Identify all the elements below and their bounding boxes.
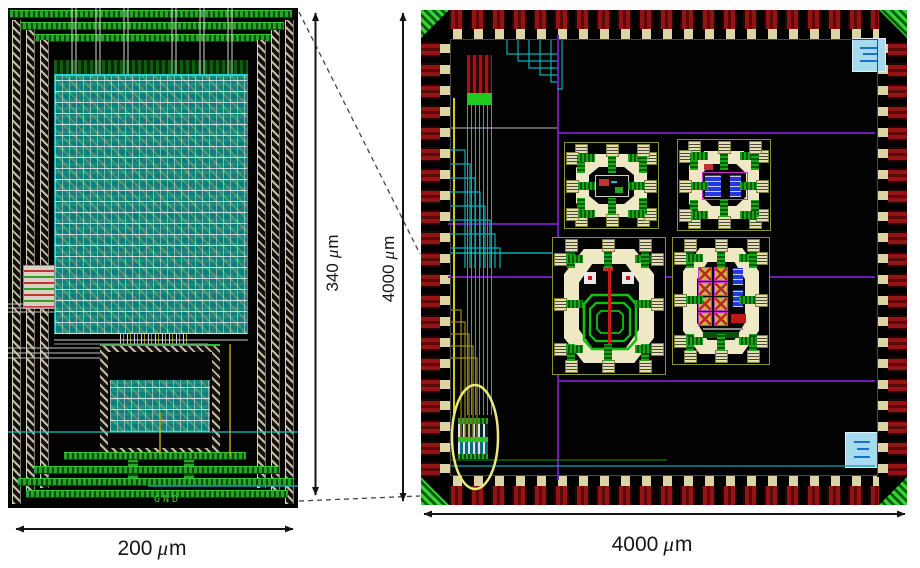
routing-wire [451, 234, 495, 268]
full-chip-layout-view [421, 10, 907, 505]
routing-wire [451, 150, 465, 268]
callout-dash-bottom [299, 496, 420, 501]
mu-symbol: μ [158, 536, 169, 560]
dim-unit: m [675, 533, 693, 556]
mu-symbol: μ [379, 251, 398, 260]
dim-label-340um: 340μm [322, 223, 344, 303]
dim-unit: m [169, 537, 187, 560]
routing-wire [557, 40, 562, 89]
dim-unit: m [323, 234, 342, 248]
macro-layout-view: GND [8, 8, 298, 508]
dim-unit: m [379, 236, 398, 250]
dim-value: 340 [323, 263, 342, 291]
callout-dash-top [299, 12, 420, 254]
dim-value: 200 [117, 537, 152, 560]
dim-label-200um: 200μm [90, 536, 214, 561]
dim-value: 4000 [379, 264, 398, 302]
routing-wire [540, 40, 557, 75]
highlight-ellipse [452, 385, 498, 489]
dim-label-4000um-horizontal: 4000μm [570, 532, 734, 557]
mu-symbol: μ [323, 250, 342, 259]
dim-value: 4000 [612, 533, 659, 556]
mu-symbol: μ [663, 532, 674, 556]
chip-wires-overlay [421, 10, 907, 505]
routing-wire [507, 40, 557, 54]
figure-canvas: GND [0, 0, 920, 568]
macro-wires-overlay [8, 8, 298, 508]
dim-label-4000um-vertical: 4000μm [378, 229, 400, 309]
